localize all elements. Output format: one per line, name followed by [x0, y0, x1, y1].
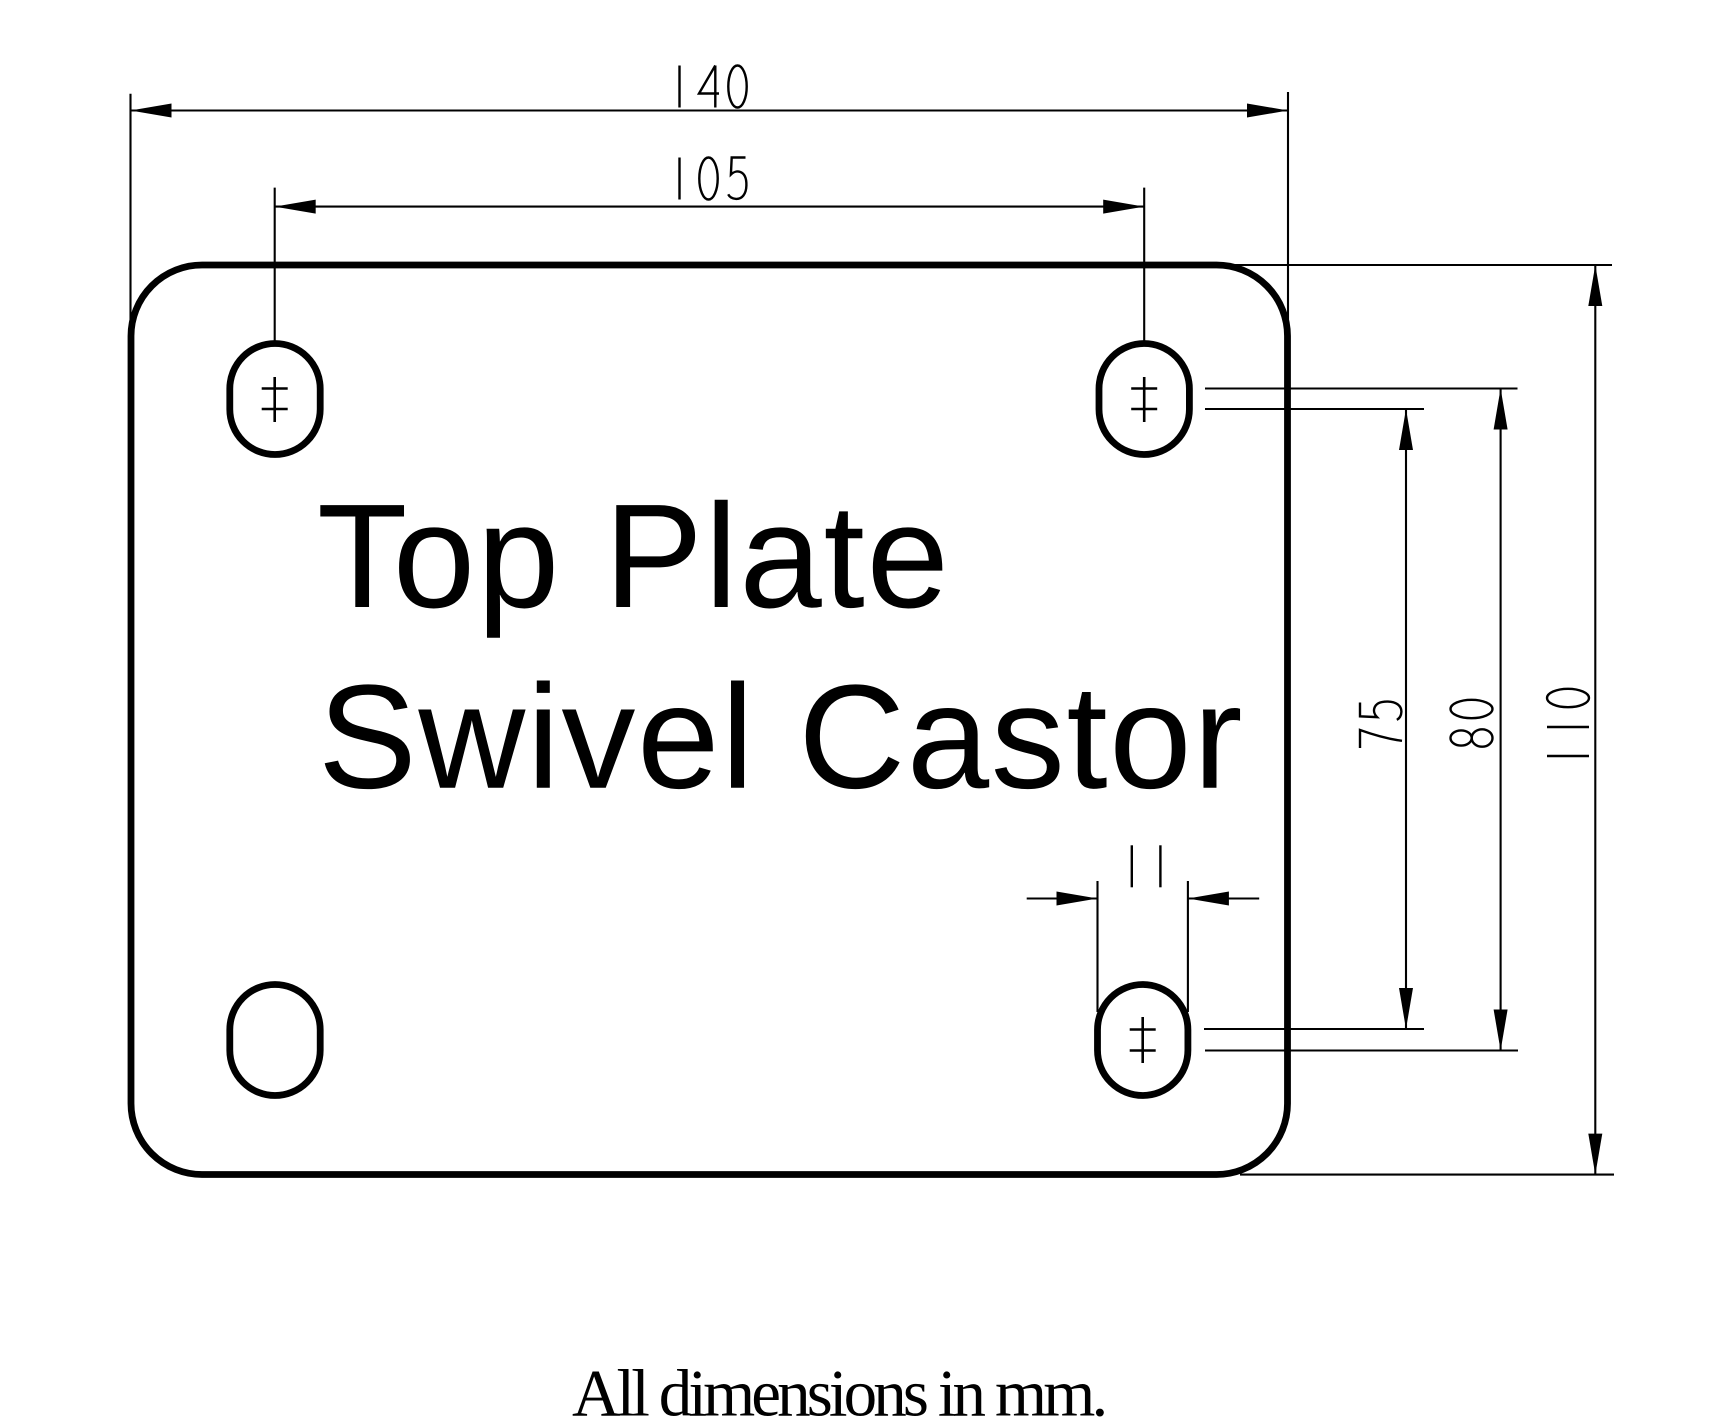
svg-text:Top Plate: Top Plate [317, 474, 951, 639]
svg-text:Swivel Castor: Swivel Castor [318, 655, 1244, 820]
svg-text:All dimensions in mm.: All dimensions in mm. [572, 1357, 1104, 1422]
